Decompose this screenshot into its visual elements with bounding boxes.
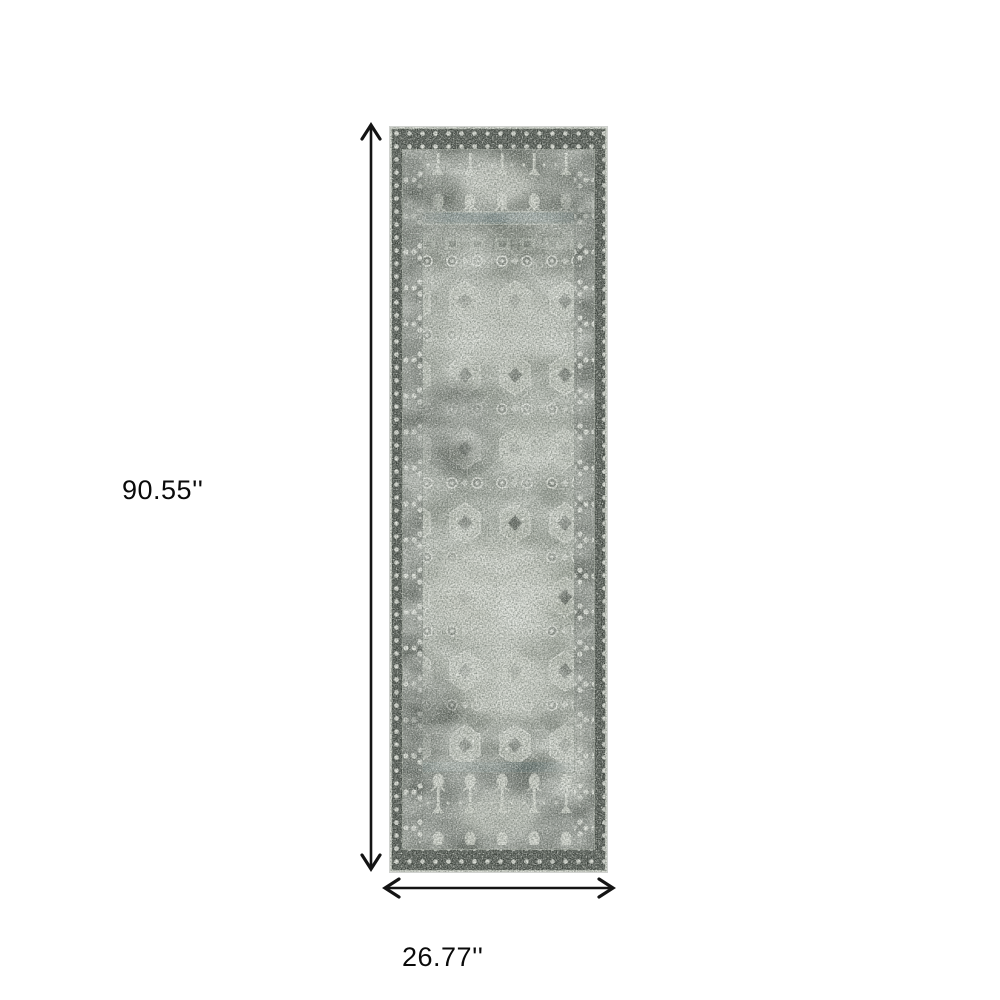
- product-dimension-diagram: 90.55'' 26.77'': [0, 0, 1000, 1000]
- height-arrow-icon: [356, 119, 386, 875]
- width-label: 26.77'': [402, 944, 483, 971]
- width-arrow-icon: [379, 873, 619, 903]
- rug-image: [390, 127, 607, 872]
- rug-pattern-art: [390, 127, 607, 872]
- height-label: 90.55'': [122, 477, 203, 504]
